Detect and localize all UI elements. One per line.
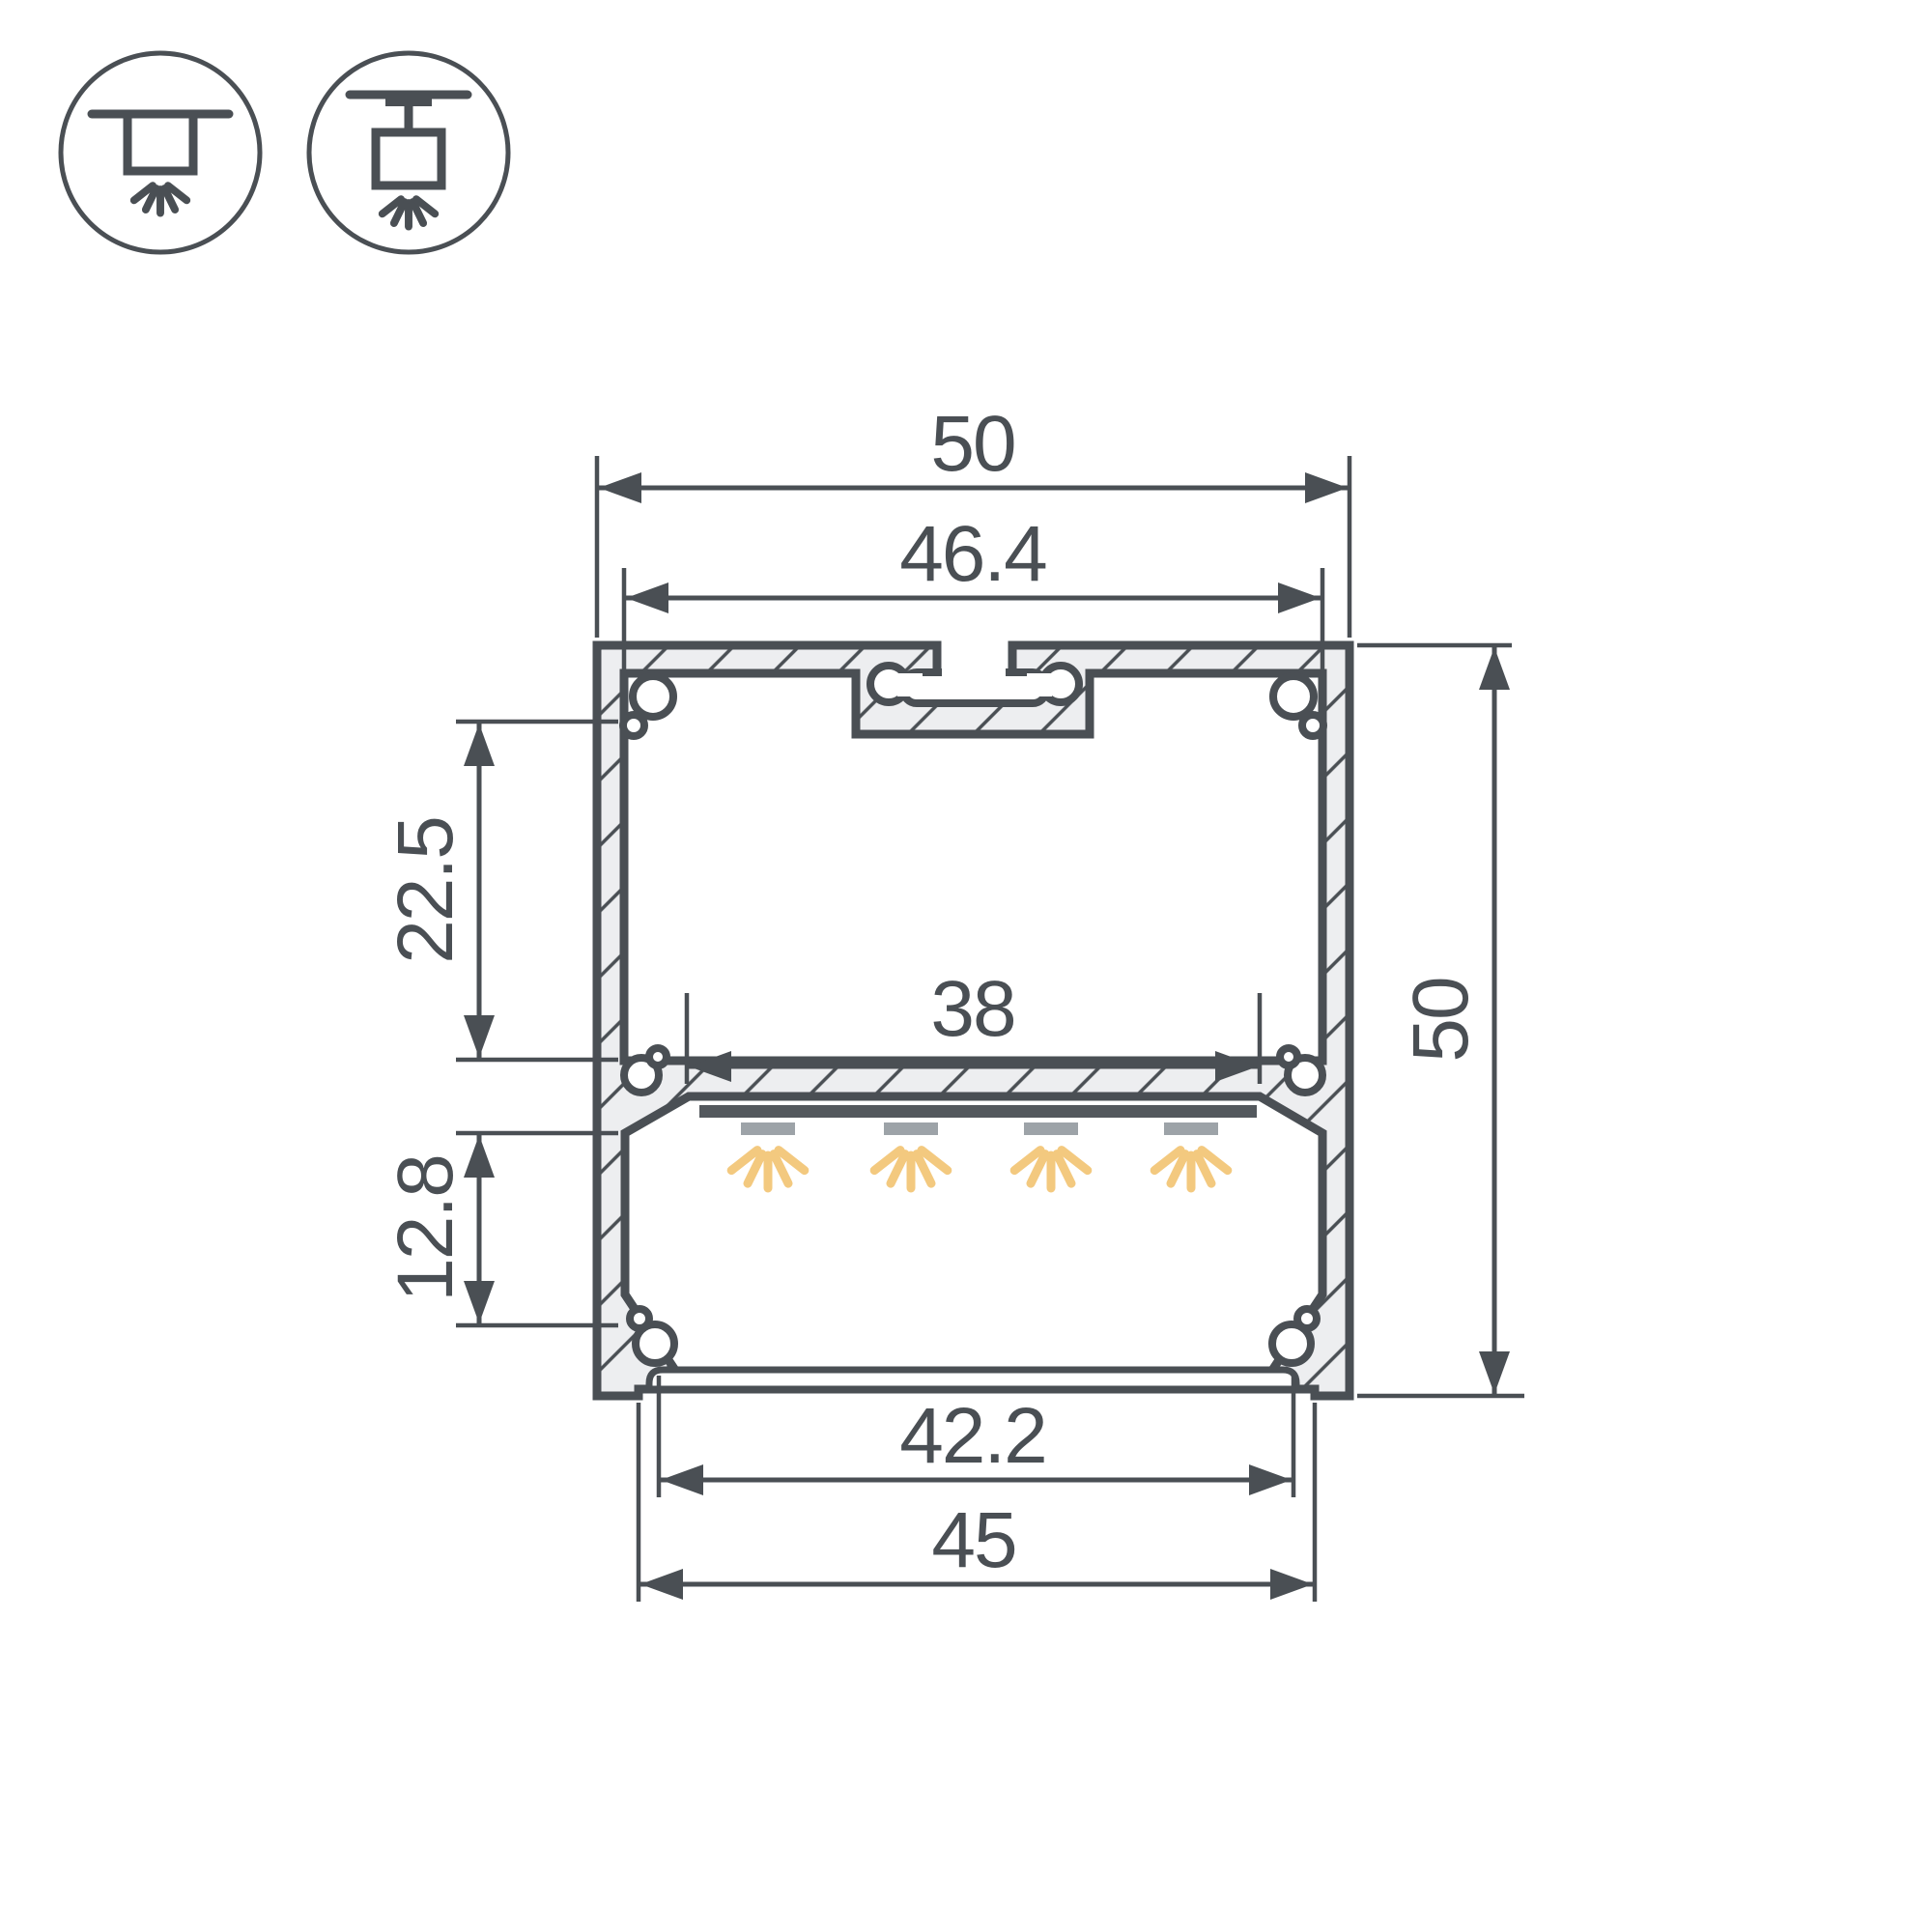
pendant-ceiling-mount-icon — [309, 53, 508, 252]
dim-diffuser-width-label: 42.2 — [899, 1392, 1046, 1480]
dim-led-platform-width: 38 — [687, 965, 1260, 1084]
diffuser-cover — [649, 1370, 1296, 1389]
dim-upper-chamber-height-label: 22.5 — [382, 817, 469, 964]
drawing-canvas: 50 46.4 38 22.5 — [0, 0, 1932, 1932]
screw-port-top-left — [633, 676, 673, 717]
dim-top-inner-width-label: 46.4 — [899, 510, 1046, 598]
luminaire-box — [128, 114, 193, 171]
screw-port-top-left-curl — [623, 715, 644, 736]
dim-lower-chamber-height-label: 12.8 — [382, 1155, 469, 1302]
icon-circle — [61, 53, 260, 252]
dim-outer-width-label: 50 — [930, 400, 1014, 488]
dim-outer-height-label: 50 — [1397, 978, 1485, 1062]
dim-lower-chamber-height: 12.8 — [382, 1133, 618, 1325]
profile-cross-section-drawing: 50 46.4 38 22.5 — [0, 0, 1932, 1932]
led-pcb-bar — [699, 1105, 1257, 1118]
led-module — [884, 1122, 938, 1135]
led-module — [1164, 1122, 1218, 1135]
led-strip — [699, 1105, 1257, 1188]
dim-upper-chamber-height: 22.5 — [382, 722, 618, 1060]
light-rays — [383, 199, 435, 226]
light-rays — [134, 185, 186, 213]
mount-icons — [61, 53, 508, 252]
diffuser-clip-left-curl — [630, 1309, 649, 1328]
led-light-rays — [731, 1151, 1228, 1188]
led-module — [741, 1122, 795, 1135]
dim-outer-height: 50 — [1357, 645, 1524, 1396]
suspension-t-slot — [870, 666, 1079, 703]
surface-ceiling-mount-icon — [61, 53, 260, 252]
diffuser-clip-right-curl — [1297, 1309, 1317, 1328]
dim-diffuser-width: 42.2 — [659, 1376, 1293, 1497]
screw-port-top-right-curl — [1302, 715, 1323, 736]
luminaire-box — [376, 132, 441, 185]
dim-led-platform-width-label: 38 — [930, 965, 1014, 1053]
screw-port-shelf-right-curl — [1280, 1048, 1297, 1065]
led-module — [1024, 1122, 1078, 1135]
dim-bottom-width-label: 45 — [931, 1496, 1015, 1584]
screw-port-shelf-left-curl — [649, 1048, 667, 1065]
screw-port-top-right — [1273, 676, 1314, 717]
